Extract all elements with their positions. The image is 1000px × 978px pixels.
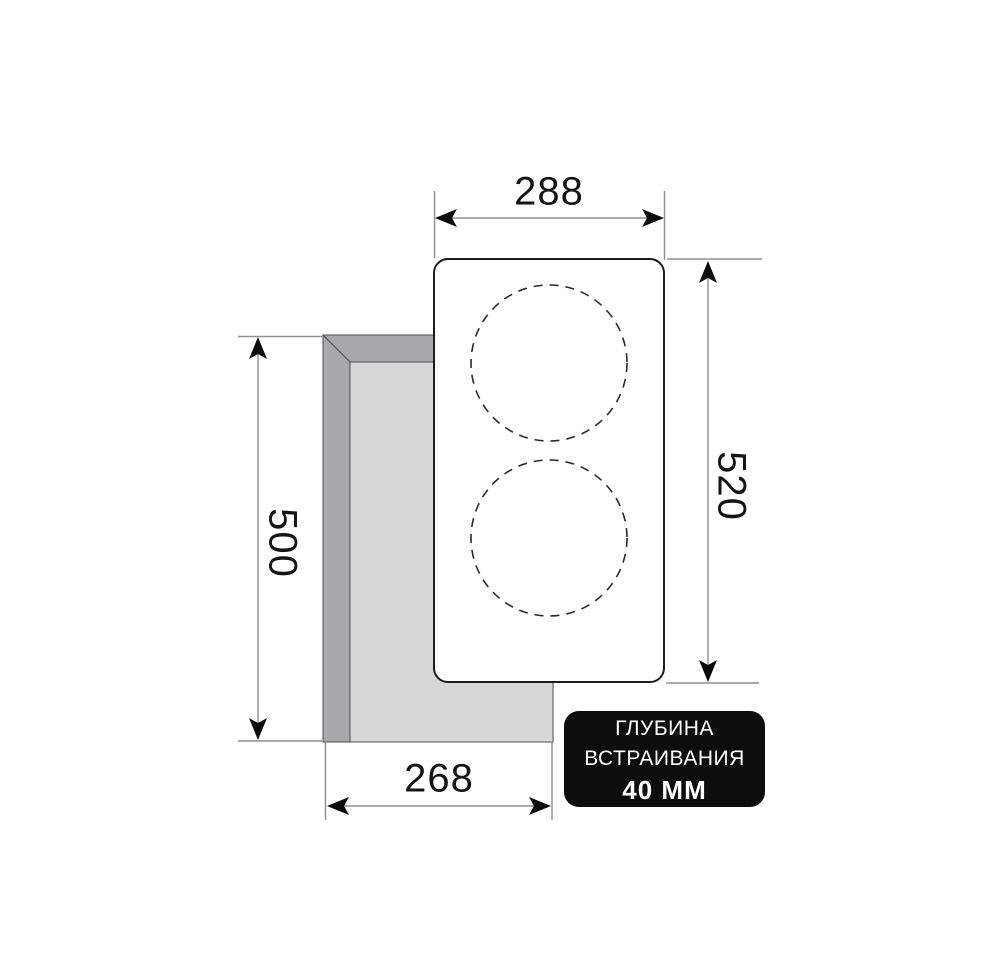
- badge-line-2: ВСТРАИВАНИЯ: [584, 744, 745, 774]
- diagram-canvas: 288 520 500 268 ГЛУБИНА ВСТРАИВАНИЯ 40 М…: [0, 0, 1000, 978]
- installation-depth-badge: ГЛУБИНА ВСТРАИВАНИЯ 40 ММ: [564, 711, 765, 807]
- technical-drawing-svg: [0, 0, 1000, 978]
- dimension-label-width-top: 288: [514, 170, 584, 215]
- dimension-label-cutout-height-left: 500: [260, 508, 305, 578]
- cooktop-glass-panel: [434, 259, 664, 682]
- dimension-label-cutout-width-bottom: 268: [404, 757, 474, 802]
- dimension-label-height-right: 520: [709, 451, 754, 521]
- badge-line-1: ГЛУБИНА: [615, 714, 714, 744]
- cooktop-panel: [434, 259, 664, 682]
- badge-line-3: 40 ММ: [622, 774, 706, 806]
